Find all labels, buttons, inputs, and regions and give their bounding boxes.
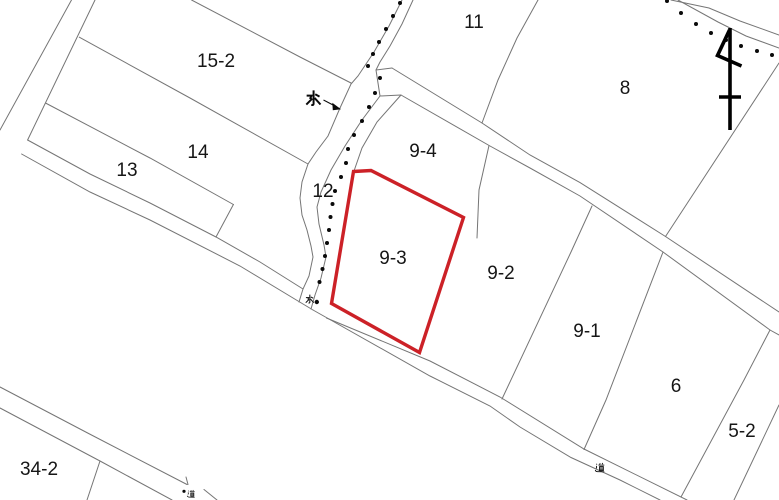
svg-text:11: 11 [464,12,484,33]
svg-text:9-3: 9-3 [379,248,406,269]
svg-text:14: 14 [187,142,209,163]
svg-text:12: 12 [312,181,333,202]
svg-text:9-4: 9-4 [409,141,437,162]
svg-text:8: 8 [620,78,631,99]
svg-text:15-2: 15-2 [197,51,235,72]
svg-text:5-2: 5-2 [728,421,755,442]
svg-text:13: 13 [116,160,137,181]
svg-text:9-2: 9-2 [487,263,514,284]
svg-text:6: 6 [671,376,682,397]
svg-text:34-2: 34-2 [20,459,58,480]
svg-text:9-1: 9-1 [573,321,600,342]
